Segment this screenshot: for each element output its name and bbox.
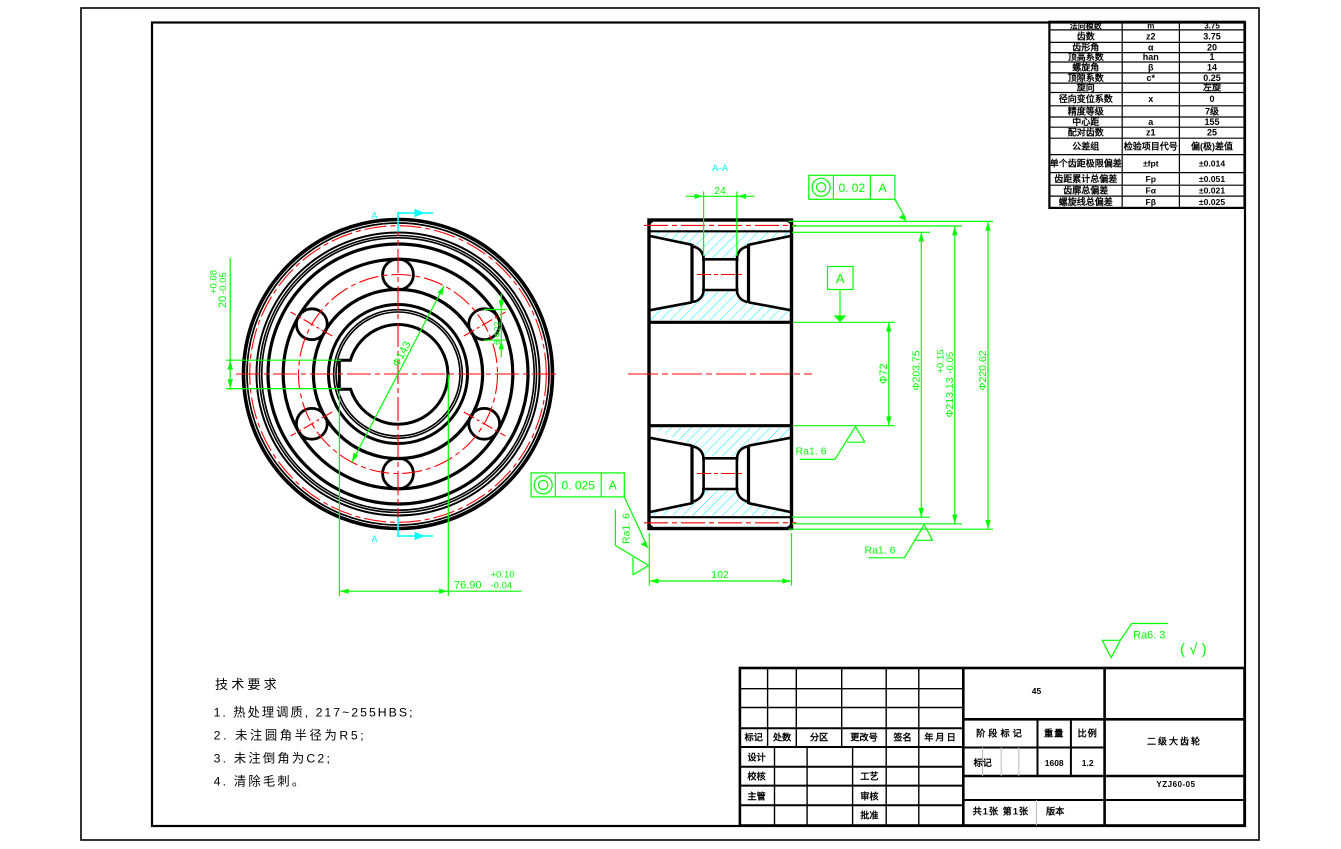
svg-text:共1张 第1张: 共1张 第1张 xyxy=(973,806,1030,817)
svg-text:±0.025: ±0.025 xyxy=(1199,197,1225,207)
svg-text:精度等级: 精度等级 xyxy=(1068,105,1105,116)
svg-text:45: 45 xyxy=(1032,686,1042,696)
svg-text:3. 未注倒角为C2;: 3. 未注倒角为C2; xyxy=(214,751,333,766)
svg-text:24: 24 xyxy=(714,185,726,197)
svg-text:a: a xyxy=(1148,117,1154,127)
svg-text:20: 20 xyxy=(1207,42,1217,52)
svg-text:A: A xyxy=(371,211,377,221)
svg-text:z1: z1 xyxy=(1146,128,1156,138)
svg-text:m: m xyxy=(1147,22,1154,31)
svg-text:han: han xyxy=(1143,52,1159,62)
svg-text:Ra1. 6: Ra1. 6 xyxy=(865,545,896,557)
svg-text:检验项目代号: 检验项目代号 xyxy=(1124,140,1178,151)
svg-text:±0.051: ±0.051 xyxy=(1199,174,1225,184)
svg-text:7级: 7级 xyxy=(1205,105,1220,116)
svg-text:旋向: 旋向 xyxy=(1076,82,1095,93)
svg-text:155: 155 xyxy=(1204,117,1219,127)
svg-text:x: x xyxy=(1148,94,1153,104)
svg-text:+0.15: +0.15 xyxy=(935,349,946,373)
svg-text:20: 20 xyxy=(217,296,229,308)
svg-text:0. 025: 0. 025 xyxy=(562,478,596,492)
svg-text:+0.08: +0.08 xyxy=(209,270,220,294)
svg-text:阶段标记: 阶段标记 xyxy=(976,728,1025,739)
svg-text:1. 热处理调质, 217~255HBS;: 1. 热处理调质, 217~255HBS; xyxy=(214,706,415,720)
svg-text:6-Ф22: 6-Ф22 xyxy=(492,321,502,345)
svg-text:±0.021: ±0.021 xyxy=(1199,186,1225,196)
svg-text:批准: 批准 xyxy=(860,810,878,821)
svg-text:Ra1. 6: Ra1. 6 xyxy=(621,513,633,544)
svg-text:( √ ): ( √ ) xyxy=(1180,641,1207,658)
svg-text:Fβ: Fβ xyxy=(1146,197,1157,207)
svg-text:1.2: 1.2 xyxy=(1082,758,1094,768)
svg-text:2. 未注圆角半径为R5;: 2. 未注圆角半径为R5; xyxy=(214,728,367,743)
svg-text:Ф143: Ф143 xyxy=(391,340,414,369)
svg-text:z2: z2 xyxy=(1146,31,1156,41)
svg-text:A: A xyxy=(371,534,377,544)
svg-text:+0.10: +0.10 xyxy=(491,569,515,580)
svg-text:年月日: 年月日 xyxy=(924,732,958,743)
svg-text:±0.014: ±0.014 xyxy=(1199,159,1225,169)
svg-text:β: β xyxy=(1148,62,1154,72)
svg-text:顶隙系数: 顶隙系数 xyxy=(1068,72,1105,83)
svg-text:A-A: A-A xyxy=(712,163,729,174)
svg-text:签名: 签名 xyxy=(892,732,911,743)
svg-text:螺旋角: 螺旋角 xyxy=(1072,61,1099,72)
svg-text:齿距累计总偏差: 齿距累计总偏差 xyxy=(1054,173,1117,184)
svg-text:YZJ60-05: YZJ60-05 xyxy=(1156,780,1195,789)
svg-text:A: A xyxy=(879,181,887,195)
svg-text:审核: 审核 xyxy=(860,790,879,801)
svg-text:α: α xyxy=(1148,42,1154,52)
svg-text:更改号: 更改号 xyxy=(850,732,878,743)
svg-text:配对齿数: 配对齿数 xyxy=(1068,127,1105,138)
svg-text:比例: 比例 xyxy=(1078,728,1098,739)
svg-text:Ф72: Ф72 xyxy=(878,363,890,384)
svg-text:3.75: 3.75 xyxy=(1204,22,1220,31)
svg-text:偏(极)差值: 偏(极)差值 xyxy=(1191,140,1233,151)
svg-text:螺旋线总偏差: 螺旋线总偏差 xyxy=(1059,196,1113,207)
svg-text:公差组: 公差组 xyxy=(1072,140,1099,151)
svg-text:Ra1. 6: Ra1. 6 xyxy=(796,446,827,458)
svg-text:工艺: 工艺 xyxy=(860,771,878,782)
svg-text:Ф203.75: Ф203.75 xyxy=(911,350,923,390)
svg-text:齿形角: 齿形角 xyxy=(1072,41,1099,52)
svg-text:±fpt: ±fpt xyxy=(1143,159,1159,169)
svg-text:0. 02: 0. 02 xyxy=(838,181,865,195)
svg-text:76.90: 76.90 xyxy=(454,580,482,592)
svg-text:校核: 校核 xyxy=(747,771,766,782)
svg-text:重量: 重量 xyxy=(1044,728,1064,739)
svg-text:主管: 主管 xyxy=(747,790,765,801)
svg-text:齿数: 齿数 xyxy=(1077,30,1096,41)
svg-text:中心距: 中心距 xyxy=(1072,116,1099,127)
svg-text:A: A xyxy=(609,478,617,492)
svg-text:分区: 分区 xyxy=(810,732,828,743)
svg-text:左旋: 左旋 xyxy=(1202,82,1222,93)
svg-text:0: 0 xyxy=(1209,94,1214,104)
svg-text:齿廓总偏差: 齿廓总偏差 xyxy=(1063,185,1108,196)
svg-text:Fp: Fp xyxy=(1146,174,1157,184)
svg-text:Ф220.62: Ф220.62 xyxy=(977,350,989,390)
svg-text:c*: c* xyxy=(1147,73,1156,83)
svg-text:Fα: Fα xyxy=(1146,186,1157,196)
svg-text:Ra6. 3: Ra6. 3 xyxy=(1133,630,1165,642)
svg-text:单个齿距极限偏差: 单个齿距极限偏差 xyxy=(1050,158,1122,169)
svg-text:0.25: 0.25 xyxy=(1203,73,1221,83)
svg-text:1: 1 xyxy=(1209,52,1214,62)
svg-text:3.75: 3.75 xyxy=(1203,31,1221,41)
svg-text:-0.04: -0.04 xyxy=(491,581,513,592)
svg-text:-0.05: -0.05 xyxy=(218,272,229,294)
svg-text:1608: 1608 xyxy=(1045,758,1064,768)
svg-text:技术要求: 技术要求 xyxy=(215,677,280,692)
svg-text:25: 25 xyxy=(1207,128,1217,138)
svg-text:-0.05: -0.05 xyxy=(945,352,956,374)
svg-text:二级大齿轮: 二级大齿轮 xyxy=(1147,736,1202,747)
svg-text:处数: 处数 xyxy=(772,732,792,743)
svg-text:法向模数: 法向模数 xyxy=(1070,21,1103,31)
svg-text:A: A xyxy=(836,271,845,286)
svg-text:设计: 设计 xyxy=(747,752,765,763)
svg-text:顶高系数: 顶高系数 xyxy=(1068,51,1105,62)
svg-text:标记: 标记 xyxy=(744,732,764,743)
svg-text:Ф213.13: Ф213.13 xyxy=(944,377,956,417)
svg-text:14: 14 xyxy=(1207,62,1217,72)
svg-text:标记: 标记 xyxy=(973,757,993,768)
svg-text:版本: 版本 xyxy=(1045,806,1065,817)
svg-text:4. 清除毛刺。: 4. 清除毛刺。 xyxy=(214,774,307,789)
svg-text:102: 102 xyxy=(711,569,729,581)
svg-text:径向变位系数: 径向变位系数 xyxy=(1059,93,1114,104)
